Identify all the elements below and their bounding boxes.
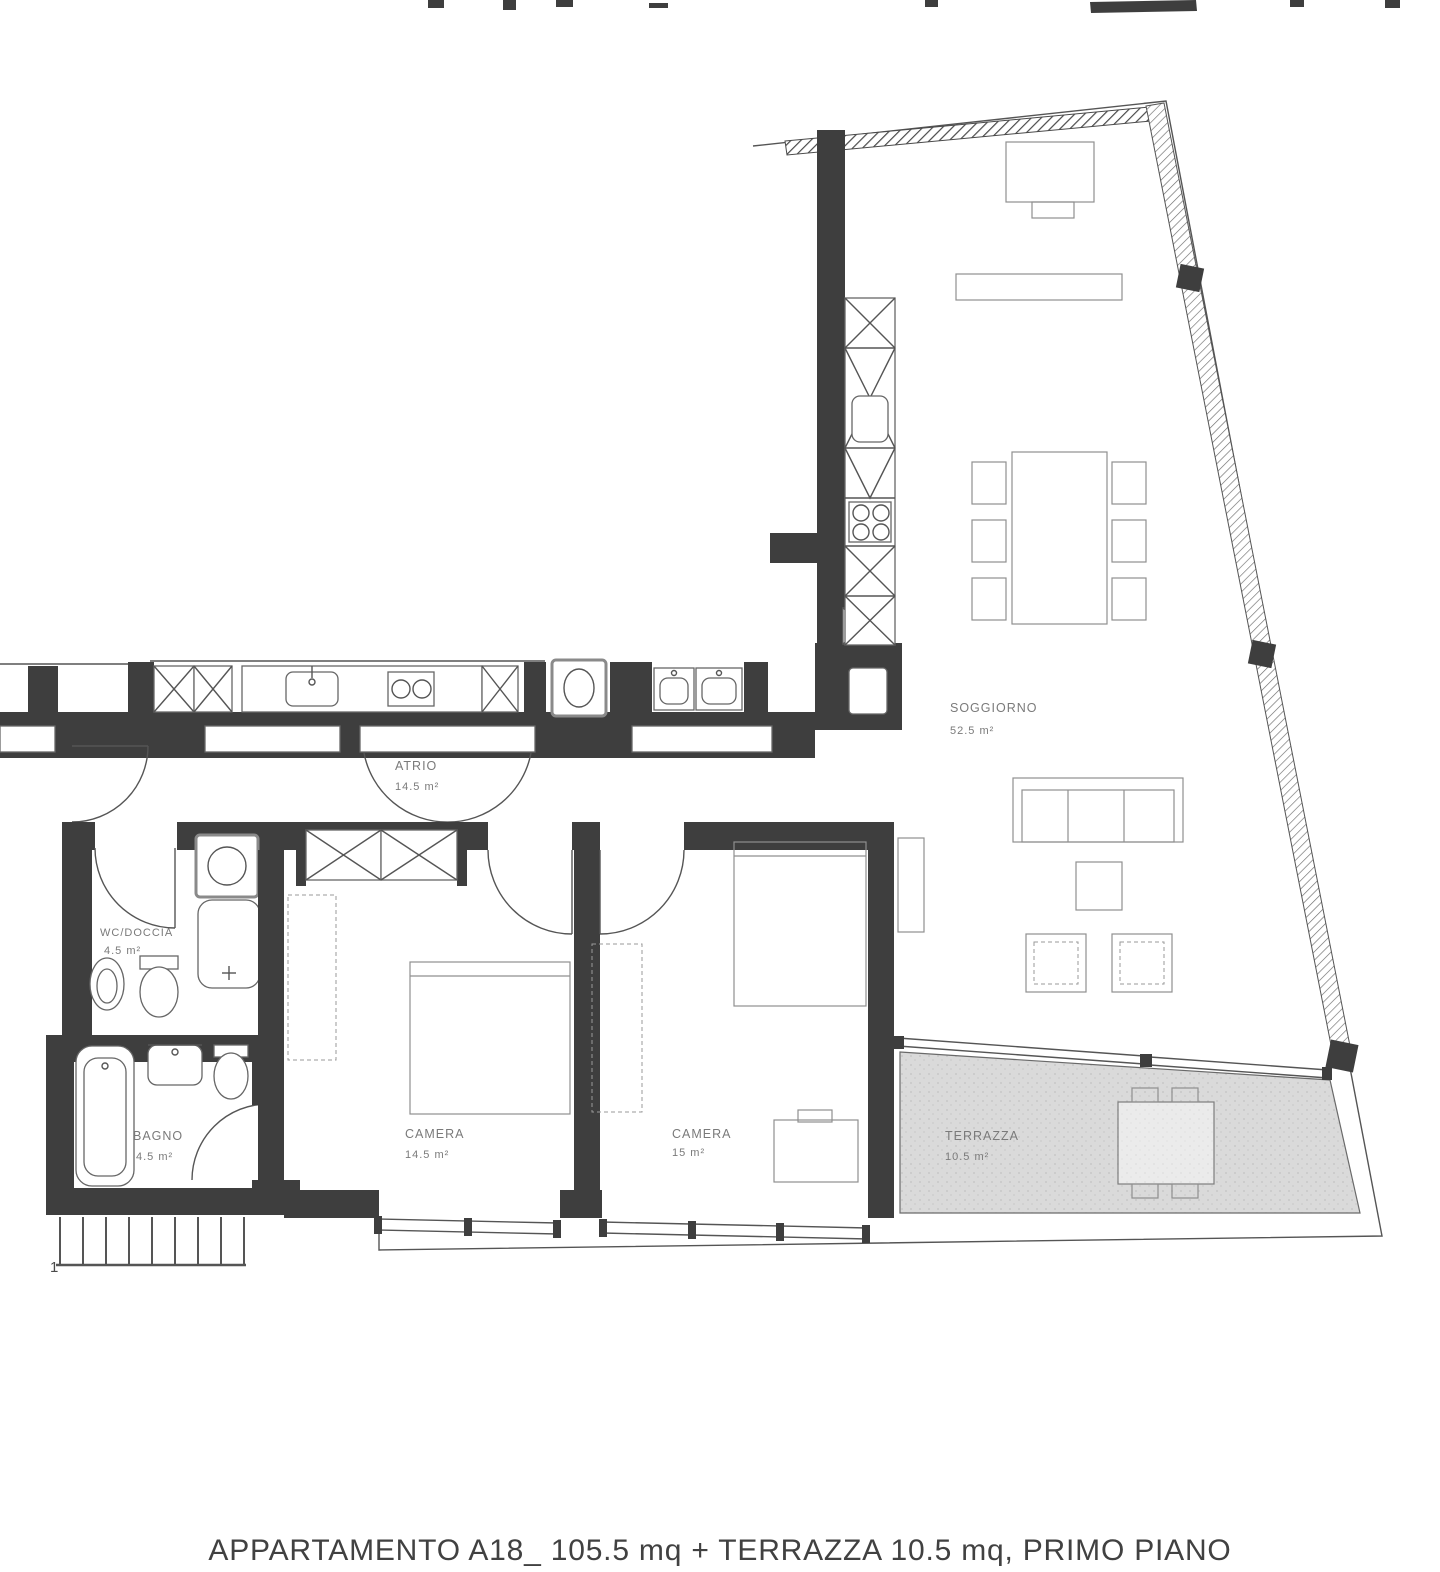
soggiorno-window-wall-east [1146, 103, 1359, 1073]
bed [734, 842, 866, 1006]
label-terrazza-area: 10.5 m² [945, 1151, 989, 1163]
label-atrio-area: 14.5 m² [395, 781, 439, 793]
floor-plan-drawing: 1 [0, 0, 1440, 1572]
armchair [1026, 934, 1086, 992]
bidet-icon [90, 958, 124, 1010]
bedroom-wing-north-wall [62, 820, 894, 852]
washing-machine-icon [196, 835, 258, 897]
terrazza-area [894, 1036, 1360, 1213]
window [599, 1219, 870, 1243]
door [95, 848, 175, 928]
label-soggiorno-area: 52.5 m² [950, 725, 994, 737]
dining-table [972, 452, 1146, 624]
plan-caption: APPARTAMENTO A18_ 105.5 mq + TERRAZZA 10… [0, 1534, 1440, 1568]
counter [242, 666, 482, 712]
camera2-room [592, 832, 894, 1215]
label-bagno-area: 4.5 m² [136, 1151, 173, 1163]
label-camera2-area: 15 m² [672, 1147, 705, 1159]
shower-tray-icon [198, 900, 260, 988]
closet-box-icon [482, 666, 518, 712]
duct [849, 668, 887, 714]
scan-fragments [428, 0, 1400, 13]
bedroom-south-wall [284, 1190, 894, 1243]
label-camera1-area: 14.5 m² [405, 1149, 449, 1161]
label-wc-doccia-area: 4.5 m² [104, 945, 141, 957]
toilet-icon [214, 1045, 248, 1099]
kitchen-sink-icon [852, 396, 888, 442]
railing [56, 1217, 246, 1265]
cooktop-icon [388, 672, 434, 706]
label-camera2: CAMERA [672, 1127, 731, 1141]
label-bagno: BAGNO [133, 1129, 183, 1143]
window [374, 1216, 561, 1238]
toilet-icon [140, 956, 178, 1017]
armchair [1112, 934, 1172, 992]
label-camera1: CAMERA [405, 1127, 464, 1141]
bathtub-icon [76, 1046, 134, 1186]
label-soggiorno: SOGGIORNO [950, 701, 1037, 715]
niche-door-arc [364, 753, 531, 822]
label-terrazza: TERRAZZA [945, 1129, 1019, 1143]
sofa [1013, 778, 1183, 842]
stair-number: 1 [50, 1259, 59, 1276]
closet-icon [296, 824, 467, 886]
door-arc [192, 1104, 268, 1180]
wall-pillar [1176, 264, 1204, 292]
door [600, 850, 684, 934]
washing-machine-icon [552, 660, 606, 716]
wall [868, 832, 894, 1215]
kitchen-counter [845, 298, 895, 645]
door [488, 850, 572, 934]
radiator [898, 838, 924, 932]
sink-icon [286, 666, 338, 706]
label-wc-doccia: WC/DOCCIA [100, 927, 173, 939]
label-atrio: ATRIO [395, 759, 437, 773]
desk [774, 1110, 858, 1182]
bed [410, 962, 570, 1114]
floor-plan-page: 1 [0, 0, 1440, 1572]
bedroom-divider-wall [574, 850, 600, 1190]
neighbour-fixtures [150, 660, 768, 716]
terrace-table [1118, 1088, 1214, 1198]
desk [1006, 142, 1094, 218]
wall [258, 850, 284, 1042]
coffee-table [1076, 862, 1122, 910]
closet-box-icon [154, 666, 232, 712]
sideboard [956, 274, 1122, 300]
cooktop-icon [849, 502, 891, 542]
basin-icon [654, 668, 694, 710]
sink-icon [148, 1045, 202, 1085]
wardrobe [288, 895, 336, 1060]
wall-pillar [1248, 640, 1276, 668]
basin-icon [696, 668, 742, 710]
